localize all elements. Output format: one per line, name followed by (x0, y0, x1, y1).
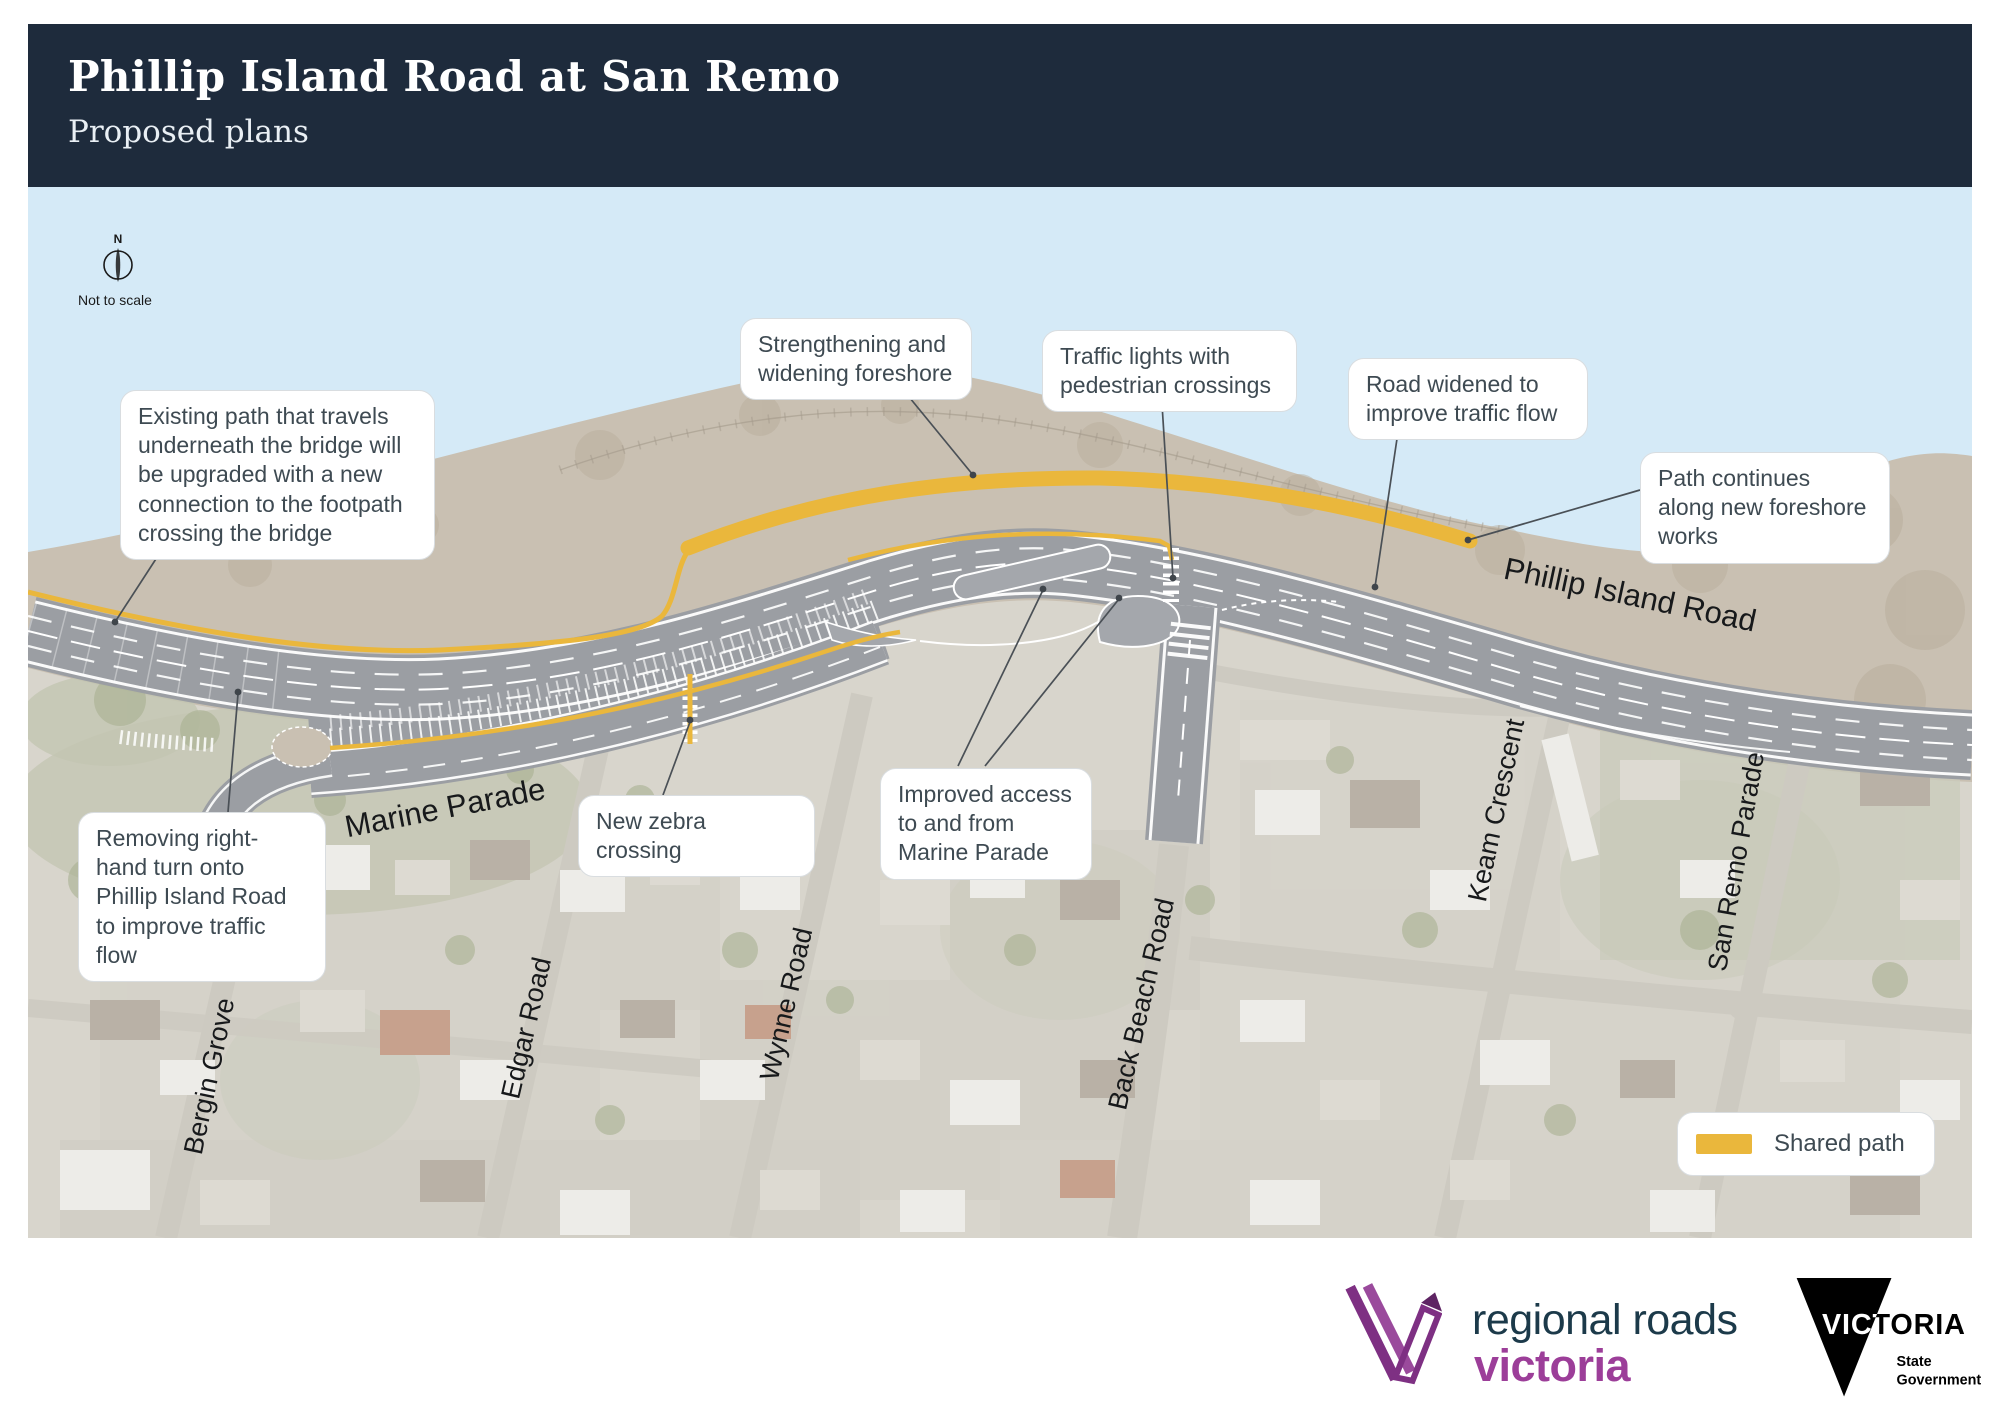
victoria-wordmark: victoria (1474, 1340, 1630, 1392)
map-drawing: Phillip Island Road Marine Parade Bergin… (28, 187, 1972, 1238)
callout-removing-right-turn: Removing right-hand turn onto Phillip Is… (78, 812, 326, 982)
callout-improved-access: Improved access to and from Marine Parad… (880, 768, 1092, 880)
compass-note: Not to scale (78, 292, 152, 308)
callout-traffic-lights: Traffic lights with pedestrian crossings (1042, 330, 1297, 412)
page-title: Phillip Island Road at San Remo (68, 52, 840, 101)
shared-path-swatch (1696, 1134, 1752, 1154)
callout-existing-path: Existing path that travels underneath th… (120, 390, 435, 560)
callout-new-zebra-crossing: New zebra crossing (578, 795, 815, 877)
compass-north-label: N (114, 232, 123, 246)
callout-road-widened: Road widened to improve traffic flow (1348, 358, 1588, 440)
traffic-island-west (272, 727, 332, 767)
page: Phillip Island Road at San Remo Proposed… (0, 0, 2000, 1414)
regional-roads-victoria-icon (1338, 1282, 1442, 1386)
header-banner: Phillip Island Road at San Remo Proposed… (28, 24, 1972, 187)
state-label: State (1897, 1354, 1932, 1370)
callout-path-continues: Path continues along new foreshore works (1640, 452, 1890, 564)
page-subtitle: Proposed plans (68, 114, 309, 150)
government-label: Government (1897, 1373, 1982, 1389)
footer: regional roads victoria VICTORIA VICTORI… (0, 1238, 2000, 1414)
regional-roads-wordmark: regional roads (1472, 1296, 1738, 1345)
back-beach-road (1174, 606, 1192, 842)
victoria-state-government-logo: VICTORIA VICTORIA State Government (1788, 1278, 2000, 1405)
callout-strengthening: Strengthening and widening foreshore (740, 318, 972, 400)
map-area: Phillip Island Road Marine Parade Bergin… (28, 187, 1972, 1238)
legend-label: Shared path (1774, 1130, 1905, 1158)
roundabout (1728, 992, 1756, 1020)
legend: Shared path (1677, 1112, 1935, 1176)
